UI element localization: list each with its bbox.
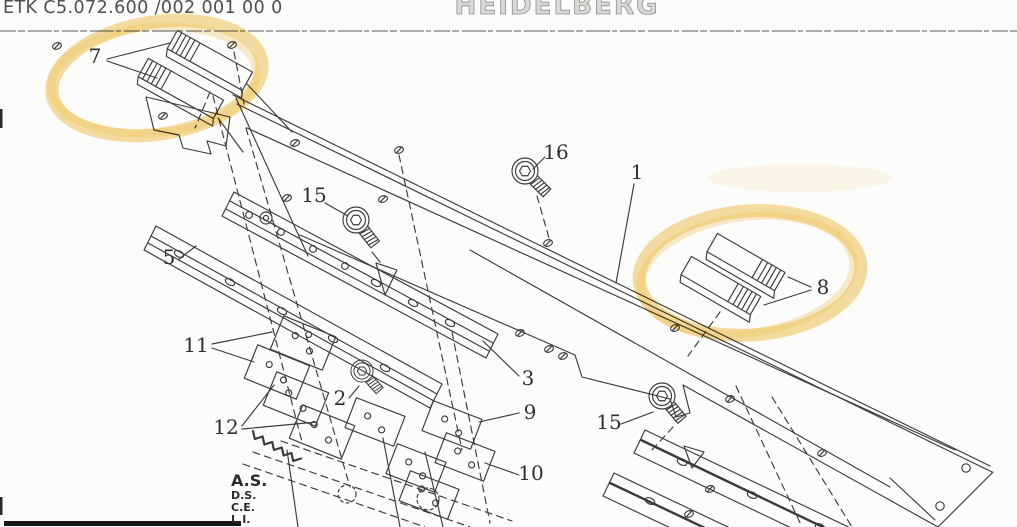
part-label-7: 7 xyxy=(89,44,102,68)
pins xyxy=(52,40,828,518)
screw-15a xyxy=(343,207,379,248)
screw-2 xyxy=(351,360,383,394)
scan-edge-mark xyxy=(0,109,3,128)
assembly-line xyxy=(218,118,243,152)
part-label-9: 9 xyxy=(524,400,537,424)
plate-12b xyxy=(289,405,354,459)
rail-bottom-right-lower xyxy=(603,473,884,527)
footer-mark-li: L.I. xyxy=(231,513,250,526)
part-label-12: 12 xyxy=(213,415,238,439)
rail-5 xyxy=(144,226,442,408)
assembly-dashed-lines xyxy=(195,52,852,527)
main-plate xyxy=(233,95,993,527)
plate-small xyxy=(386,444,446,493)
part-label-16: 16 xyxy=(543,140,568,164)
plate-small xyxy=(345,398,405,447)
part-label-8: 8 xyxy=(817,275,830,299)
part-label-10: 10 xyxy=(518,461,543,485)
screw-15b xyxy=(649,383,686,423)
plate-small xyxy=(399,471,459,520)
part-label-3: 3 xyxy=(522,366,535,390)
scan-black-bar xyxy=(4,521,241,526)
alignment-triangle xyxy=(376,263,397,295)
part-label-1: 1 xyxy=(631,160,644,184)
rail-bottom-right-upper xyxy=(634,430,926,527)
document-number: ETK C5.072.600 /002 001 00 0 xyxy=(3,0,283,18)
part-label-15a: 15 xyxy=(301,183,326,207)
highlighter-smudge xyxy=(708,164,892,192)
plate-9 xyxy=(422,401,482,450)
clamp-plates-cluster xyxy=(244,316,495,519)
diagram-canvas: ETK C5.072.600 /002 001 00 0 HEIDELBERG … xyxy=(0,0,1017,527)
scanned-parts-diagram: ETK C5.072.600 /002 001 00 0 HEIDELBERG … xyxy=(0,0,1017,527)
plate-hole xyxy=(936,502,944,510)
part-label-11: 11 xyxy=(183,333,208,357)
heidelberg-logo: HEIDELBERG xyxy=(455,0,660,21)
plate-10 xyxy=(435,433,495,482)
part-label-2: 2 xyxy=(334,386,347,410)
part-label-5: 5 xyxy=(163,245,176,269)
footer-mark-as: A.S. xyxy=(231,471,267,490)
screw-axis-line xyxy=(372,252,380,262)
footer-abbreviations: A.S. D.S. C.E. L.I. xyxy=(231,471,267,526)
part-label-15b: 15 xyxy=(596,410,621,434)
scan-edge-mark xyxy=(0,497,3,515)
plate-hole xyxy=(962,464,970,472)
clamp-8a xyxy=(704,233,788,298)
